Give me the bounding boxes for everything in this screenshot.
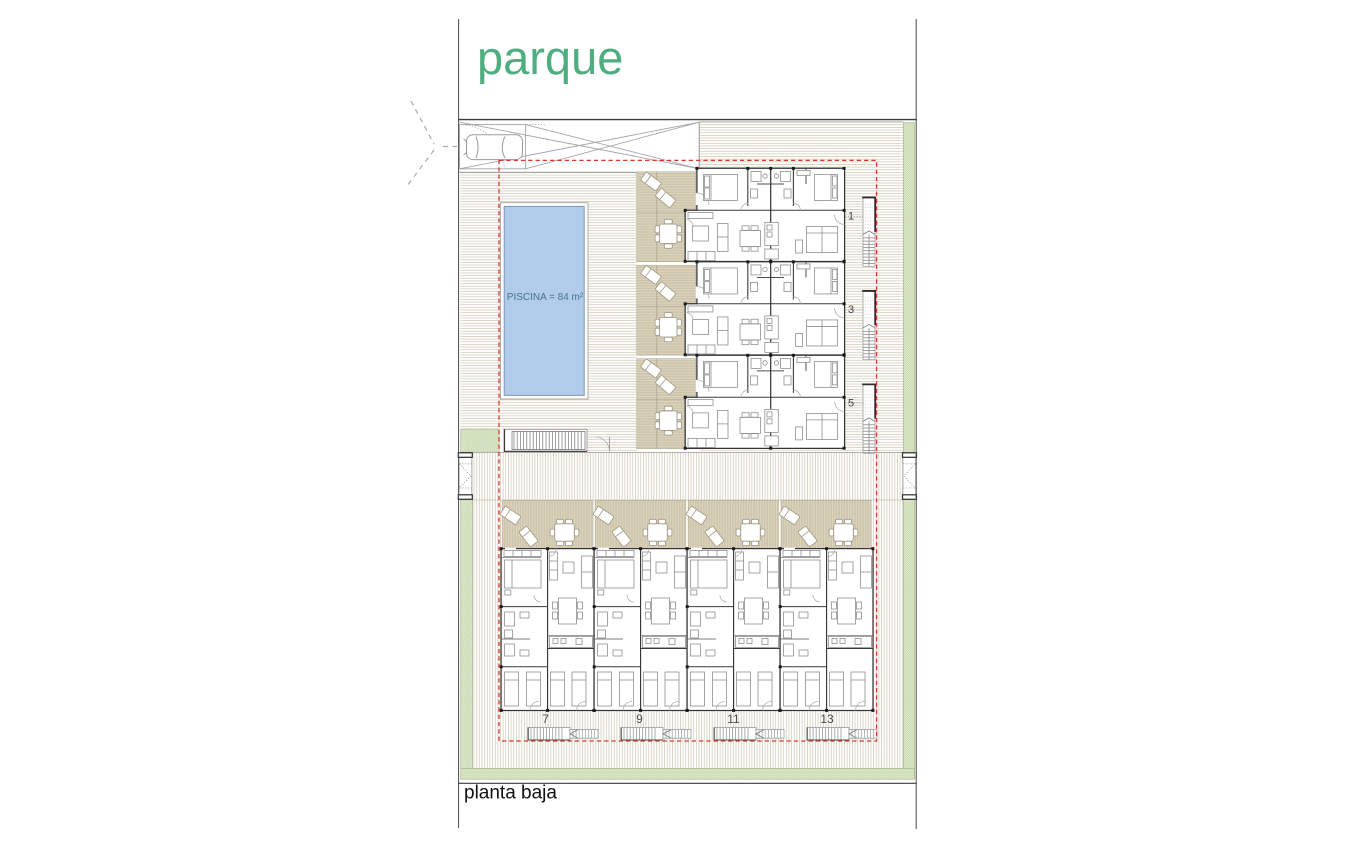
svg-text:planta baja: planta baja	[464, 783, 557, 804]
svg-text:parque: parque	[477, 31, 623, 84]
svg-text:11: 11	[727, 712, 740, 726]
svg-text:PISCINA = 84 m²: PISCINA = 84 m²	[507, 292, 584, 303]
svg-text:9: 9	[636, 712, 643, 726]
svg-text:5: 5	[848, 397, 854, 409]
svg-text:1: 1	[848, 211, 854, 223]
svg-text:3: 3	[848, 304, 854, 316]
svg-text:7: 7	[542, 712, 549, 726]
svg-text:13: 13	[820, 712, 834, 726]
